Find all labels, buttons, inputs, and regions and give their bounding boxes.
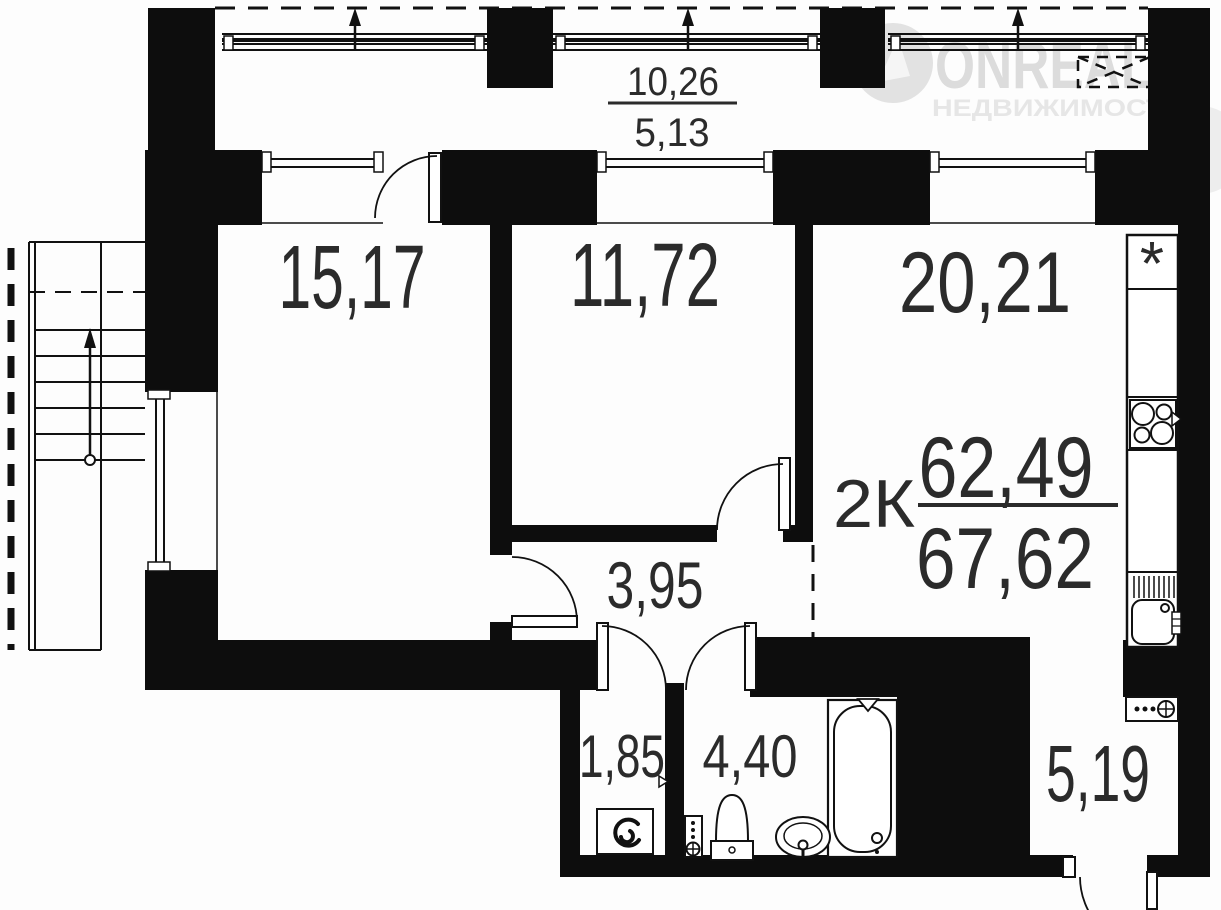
- staircase: [11, 242, 145, 650]
- room-label-laundry: 1,85: [579, 723, 665, 790]
- window-kitchen: [930, 152, 1095, 223]
- room-label-bathroom: 4,40: [703, 723, 798, 790]
- room-label-living1: 15,17: [279, 228, 426, 328]
- door-balcony: [375, 153, 441, 222]
- wall-balcony-pier: [487, 8, 553, 88]
- toilet-icon: [711, 795, 753, 860]
- door-living2: [717, 458, 790, 530]
- washing-machine-icon: [597, 809, 653, 854]
- vent-symbol: *: [1140, 230, 1164, 299]
- wall-shaft-block: [897, 637, 1030, 877]
- labels: 15,17 11,72 20,21 3,95 1,85 4,40 5,19 10…: [279, 60, 1165, 818]
- room-label-kitchen: 20,21: [899, 235, 1071, 331]
- room-label-living2: 11,72: [570, 226, 720, 326]
- watermark-tagline: НЕДВИЖИМОСТЬ: [932, 95, 1184, 122]
- towel-rail-icon: [685, 816, 702, 857]
- radiator-icon: [1126, 697, 1178, 721]
- door-entrance: [1063, 857, 1157, 910]
- window-living1: [262, 152, 383, 223]
- apartment-area-total: 67,62: [916, 511, 1094, 607]
- stove-icon: [1130, 400, 1181, 448]
- washbasin-icon: [776, 817, 830, 858]
- balcony-area-full: 10,26: [627, 60, 719, 104]
- door-bathroom: [686, 623, 756, 690]
- wall-balcony-pier-right: [1148, 8, 1210, 155]
- apartment-type-label: 2К: [833, 466, 915, 542]
- bathtub-icon: [828, 699, 897, 857]
- room-label-entry: 5,19: [1046, 729, 1150, 818]
- room-label-hallway: 3,95: [607, 548, 704, 622]
- balcony-area-reduced: 5,13: [635, 111, 710, 155]
- door-laundry: [597, 623, 666, 690]
- window-side-living1: [148, 390, 217, 571]
- floor-plan: ONREALT НЕДВИЖИМОСТЬ: [0, 0, 1221, 910]
- door-living1: [512, 557, 577, 627]
- apartment-area-living: 62,49: [919, 420, 1094, 516]
- wall-balcony-pier: [820, 8, 885, 88]
- window-living2: [597, 152, 773, 223]
- wall-balcony-pier-left: [148, 8, 215, 152]
